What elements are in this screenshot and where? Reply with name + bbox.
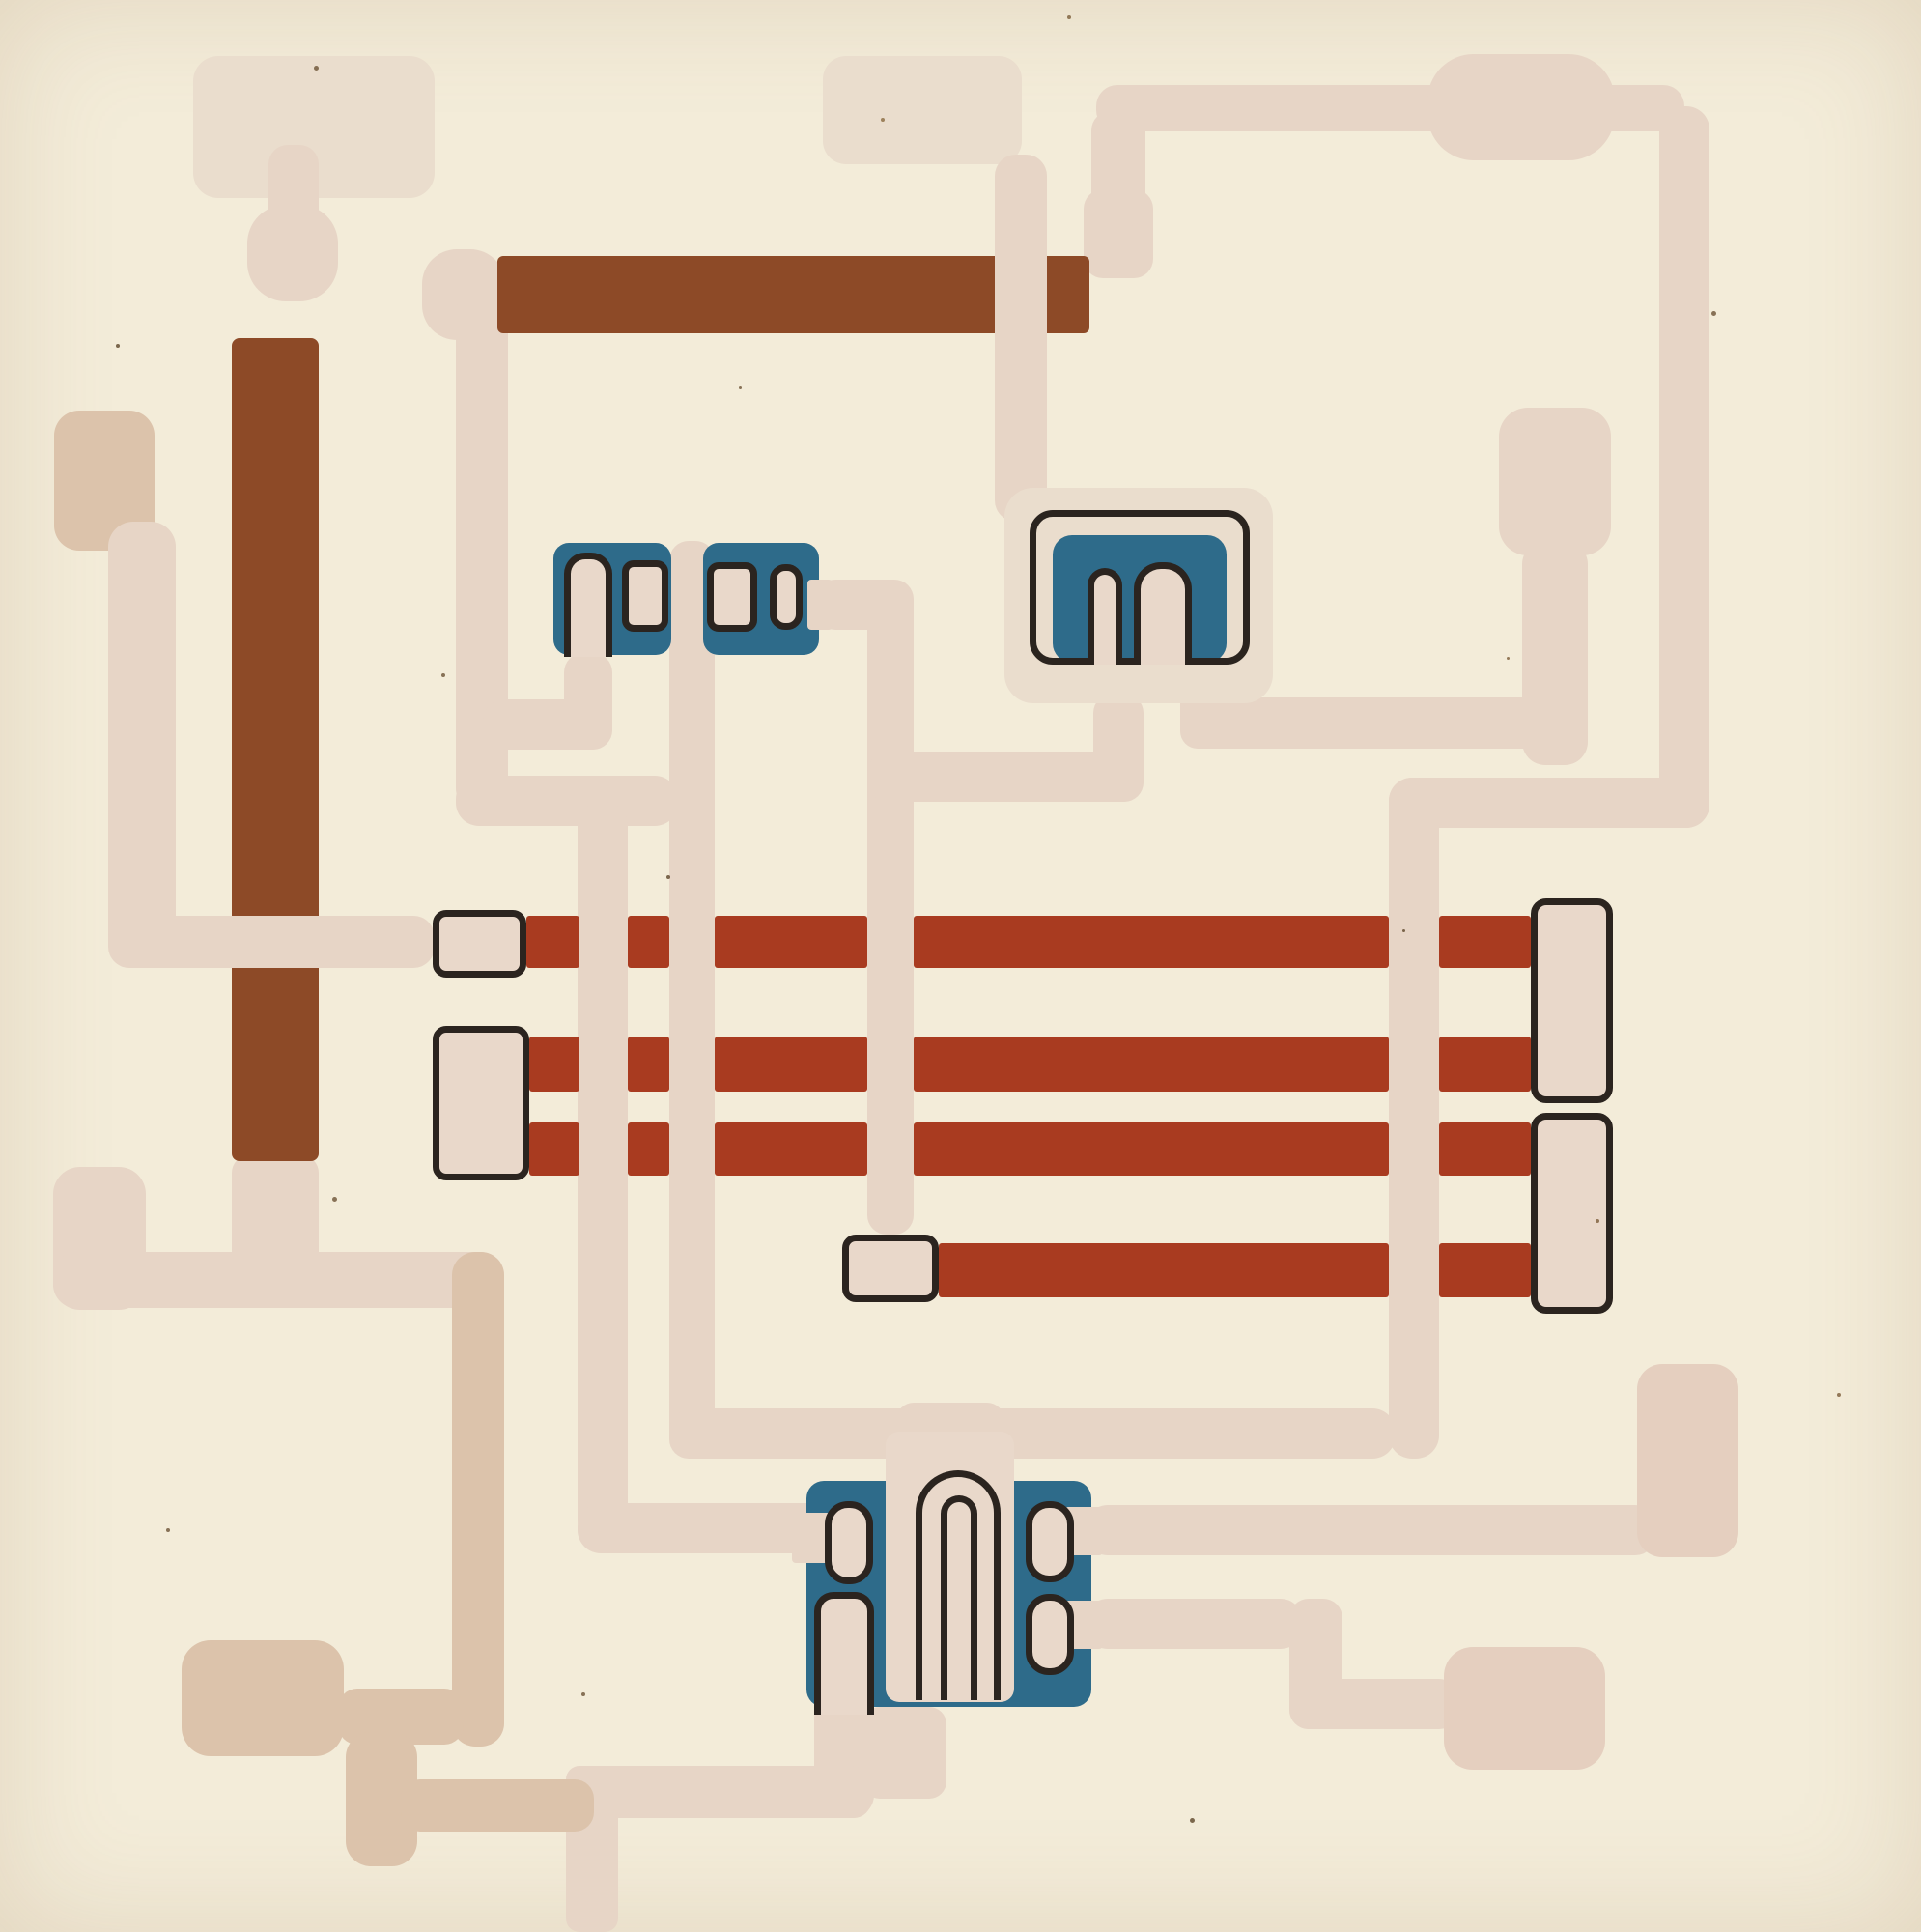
red-bar-1-seg-1 xyxy=(526,916,579,968)
paper-speckle xyxy=(1402,929,1405,932)
trace-left-v xyxy=(108,522,176,968)
pad-top-center xyxy=(823,56,1022,164)
pad-right-tall xyxy=(1637,1364,1738,1557)
red-bar-1-seg-2 xyxy=(628,916,669,968)
trace-stair-elbow-h xyxy=(456,776,678,826)
bottom-pad-h xyxy=(814,1592,874,1715)
trace-r2-h xyxy=(1087,1599,1302,1649)
dip-pad-2 xyxy=(707,562,757,632)
trace-arch-jog-h xyxy=(483,699,612,750)
bottom-pad-oval-right-1 xyxy=(1026,1501,1074,1582)
bottom-pad-oval-left xyxy=(825,1501,873,1584)
trace-d-vertical xyxy=(995,155,1047,522)
paper-speckle xyxy=(1837,1393,1841,1397)
paper-speckle xyxy=(116,344,120,348)
trace-fatpad-column xyxy=(1522,541,1588,765)
red-bar-2-seg-2 xyxy=(628,1037,669,1092)
dip-pad-1 xyxy=(622,560,668,632)
red-bar-4-seg-2 xyxy=(1439,1243,1531,1297)
red-bar-3-seg-2 xyxy=(628,1122,669,1176)
red-bar-3-seg-1 xyxy=(529,1122,579,1176)
paper-speckle xyxy=(1711,311,1716,316)
trace-t1-bulge xyxy=(1427,54,1615,160)
trace-pad1-feed-h xyxy=(108,916,435,968)
pad-outlined-bar4 xyxy=(842,1235,939,1302)
trace-pb2-neck xyxy=(401,1779,594,1832)
brown-bar-vertical xyxy=(232,338,319,1161)
dip-pad-3 xyxy=(770,564,803,630)
paper-speckle xyxy=(332,1197,337,1202)
red-bar-1-seg-4 xyxy=(914,916,1389,968)
m-arch-large xyxy=(1134,562,1192,665)
pad-outlined-right-upper xyxy=(1531,898,1613,1103)
pad-outlined-left-small xyxy=(433,910,526,978)
bottom-pad-oval-right-2 xyxy=(1026,1594,1074,1675)
paper-speckle xyxy=(1596,1219,1599,1223)
red-bar-1-seg-3 xyxy=(715,916,867,968)
red-bar-1-seg-5 xyxy=(1439,916,1531,968)
trace-r1-h xyxy=(1087,1505,1656,1555)
red-bar-4-seg-1 xyxy=(939,1243,1389,1297)
trace-b-vertical xyxy=(669,541,715,1459)
red-bar-3-seg-5 xyxy=(1439,1122,1531,1176)
paper-speckle xyxy=(166,1528,170,1532)
red-bar-3-seg-3 xyxy=(715,1122,867,1176)
trace-v1b xyxy=(452,1252,504,1747)
red-bar-2-seg-5 xyxy=(1439,1037,1531,1092)
trace-stub-under-blue xyxy=(862,1707,946,1799)
trace-bottomleft-elbow-h xyxy=(53,1252,504,1308)
dip-arch xyxy=(564,553,612,657)
paper-speckle xyxy=(1190,1818,1195,1823)
pad-fat-right xyxy=(1499,408,1611,555)
trace-c-vertical xyxy=(867,594,914,1235)
trace-m-stub-left-v xyxy=(1093,694,1144,802)
trace-a-vertical xyxy=(578,802,628,1544)
tower-arch-inner xyxy=(941,1495,977,1700)
paper-speckle xyxy=(441,673,445,677)
dip-right-notch xyxy=(807,580,833,630)
pad-bottle-right xyxy=(1444,1647,1605,1770)
m-arch-small xyxy=(1088,568,1122,665)
paper-speckle xyxy=(1507,657,1510,660)
paper-speckle xyxy=(739,386,742,389)
paper-speckle xyxy=(1067,15,1071,19)
abstract-circuit-painting xyxy=(0,0,1921,1932)
pad-outlined-left-tall xyxy=(433,1026,529,1180)
trace-r2-step-h xyxy=(1289,1679,1458,1729)
trace-e-vertical xyxy=(1389,778,1439,1459)
pad-bottle-left xyxy=(182,1640,344,1756)
red-bar-2-seg-1 xyxy=(529,1037,579,1092)
paper-speckle xyxy=(881,118,885,122)
joint-blob-left xyxy=(247,205,338,301)
red-bar-2-seg-3 xyxy=(715,1037,867,1092)
red-bar-2-seg-4 xyxy=(914,1037,1389,1092)
pad-outlined-right-lower xyxy=(1531,1113,1613,1314)
trace-f-vertical xyxy=(1659,106,1709,828)
paper-speckle xyxy=(314,66,319,71)
paper-speckle xyxy=(581,1692,585,1696)
trace-neck-h xyxy=(669,1408,1396,1459)
paper-speckle xyxy=(666,875,670,879)
red-bar-3-seg-4 xyxy=(914,1122,1389,1176)
